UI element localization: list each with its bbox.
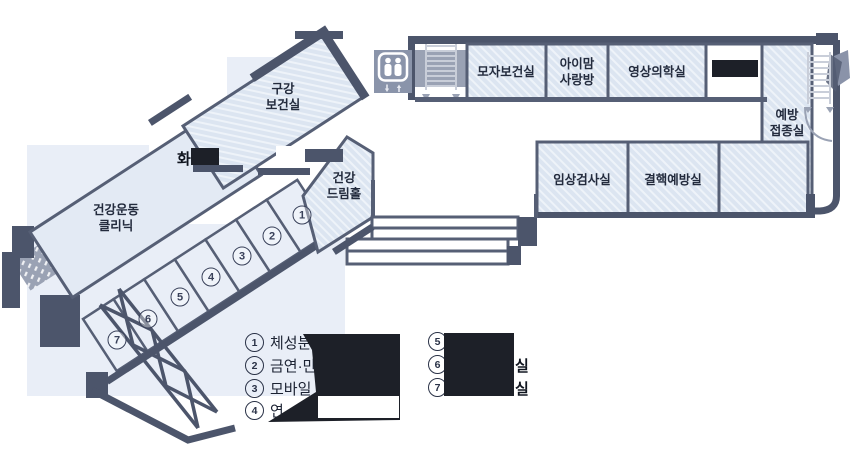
room-label-clinical-lab: 임상검사실 xyxy=(553,172,611,188)
room-label-imam: 아이맘사랑방 xyxy=(560,56,595,89)
room-number-5: 5 xyxy=(171,288,190,307)
room-number-1: 1 xyxy=(293,206,312,225)
floorplan-drawing xyxy=(0,0,850,475)
room-label-restroom-partial: 화 xyxy=(177,148,191,169)
legend-number-4: 4 xyxy=(245,401,264,420)
hall-wall-left xyxy=(371,180,375,218)
hall-wall-right xyxy=(534,194,538,218)
legend-item-6: 6 xyxy=(428,355,447,374)
room-number-3: 3 xyxy=(233,247,252,266)
legend-number-2: 2 xyxy=(245,356,264,375)
legend-number-7: 7 xyxy=(428,378,447,397)
top-row-bottom-wall xyxy=(415,97,767,102)
room-number-4: 4 xyxy=(202,268,221,287)
legend-text-4: 연 xyxy=(270,400,284,421)
room-label-dream-hall: 건강드림홀 xyxy=(327,170,362,203)
legend-suffix-6: 실 xyxy=(515,355,529,376)
legend-text-1: 체성분 xyxy=(270,332,311,353)
legend-number-5: 5 xyxy=(428,332,447,351)
legend-item-3: 3 모바일 xyxy=(245,378,311,399)
room-label-imaging: 영상의학실 xyxy=(628,64,686,80)
entrance-steps xyxy=(347,217,518,264)
legend-item-4: 4 연 xyxy=(245,400,284,421)
legend-text-2: 금연·만성 xyxy=(270,355,330,376)
floorplan-canvas: 모자보건실 아이맘사랑방 영상의학실 예방접종실 임상검사실 결핵예방실 구강보… xyxy=(0,0,850,475)
room-label-mother-child: 모자보건실 xyxy=(477,64,535,80)
room-number-6: 6 xyxy=(139,310,158,329)
legend-number-3: 3 xyxy=(245,379,264,398)
room-label-tb-prevention: 결핵예방실 xyxy=(644,172,702,188)
room-label-vaccination: 예방접종실 xyxy=(770,107,805,140)
room-number-7: 7 xyxy=(108,331,127,350)
legend-suffix-7: 실 xyxy=(515,378,529,399)
elevator-icon xyxy=(374,50,412,93)
room-label-oral-health: 구강보건실 xyxy=(266,81,301,114)
legend-text-3: 모바일 xyxy=(270,378,311,399)
legend-number-1: 1 xyxy=(245,333,264,352)
legend-item-2: 2 금연·만성 xyxy=(245,355,330,376)
room-number-2: 2 xyxy=(263,227,282,246)
legend-number-6: 6 xyxy=(428,355,447,374)
room-label-exercise-clinic: 건강운동클리닉 xyxy=(93,202,139,235)
legend-item-7: 7 xyxy=(428,378,447,397)
legend-item-5: 5 xyxy=(428,332,447,351)
legend-item-1: 1 체성분 xyxy=(245,332,311,353)
